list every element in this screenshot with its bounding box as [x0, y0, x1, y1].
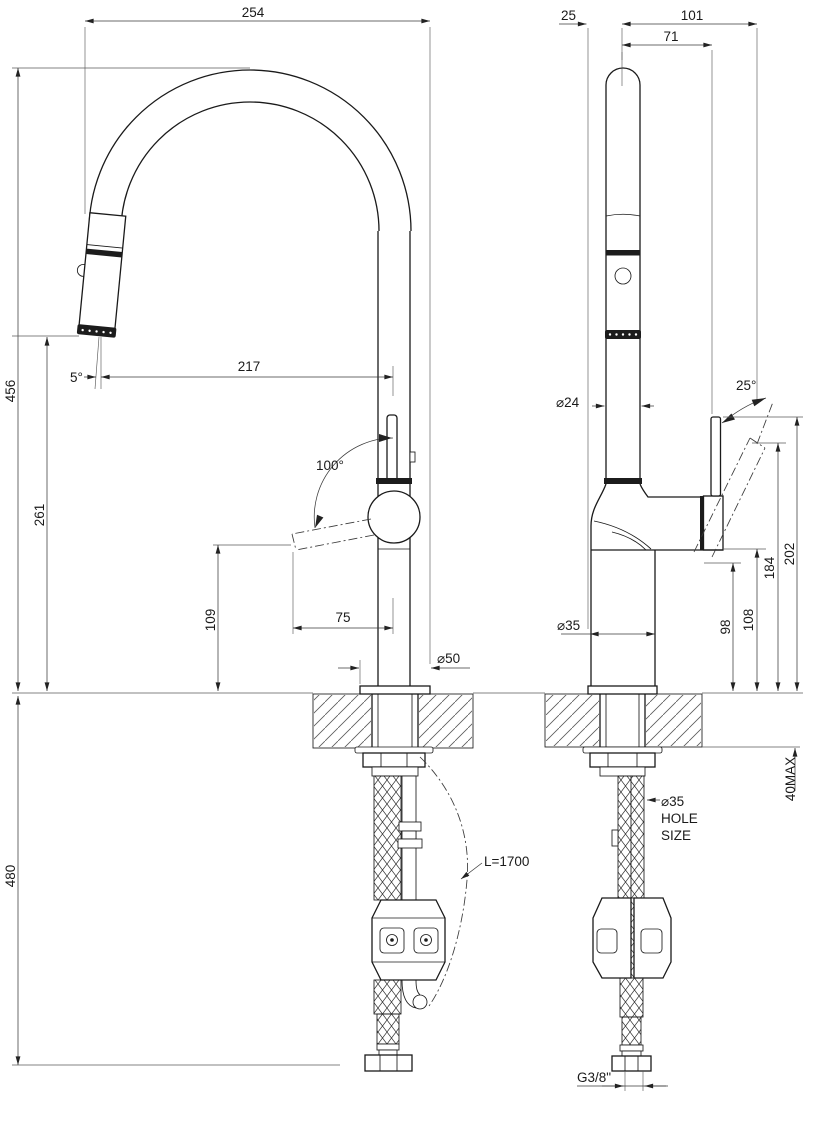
dim-25-front-offset: 25 [559, 8, 587, 24]
dim-98-handle-low-height: 98 [704, 563, 741, 691]
gooseneck-spout-outer [89, 70, 411, 231]
handle-lever-front [387, 415, 397, 481]
dim-261-outlet-height: 261 [12, 336, 79, 691]
counter-hatch-left [314, 695, 371, 747]
hole-note-d35: ⌀35 [661, 794, 684, 809]
braided-supply-hose-front [374, 776, 401, 900]
angle-25-label: 25° [736, 378, 756, 393]
dim-184-label: 184 [762, 556, 777, 579]
base-flange-front [360, 686, 430, 694]
dim-217-label: 217 [238, 359, 261, 374]
side-view [545, 68, 773, 1071]
mixing-ball-joint [368, 491, 420, 543]
dim-109-label: 109 [203, 609, 218, 632]
collar-band-front [376, 478, 412, 484]
dim-d24-spout-diameter: ⌀24 [556, 395, 654, 410]
dim-217-outlet-to-axis: 5° 217 [70, 337, 393, 396]
dim-456-overall-height: 456 [3, 68, 250, 691]
washer-front [355, 747, 433, 753]
dim-d35-label: ⌀35 [557, 618, 580, 633]
dim-101-label: 101 [681, 8, 704, 23]
dim-g38-thread: G3/8" [577, 1070, 668, 1091]
dim-d35-riser-diameter: ⌀35 [557, 618, 655, 634]
collar-band-side [604, 478, 642, 484]
faucet-technical-drawing-page: 254 456 261 480 5° [0, 0, 835, 1144]
angle-100-label: 100° [316, 458, 344, 473]
dim-109-handle-tip-height: 109 [203, 545, 291, 691]
mounting-nut-front [363, 753, 425, 767]
gooseneck-spout-inner [121, 102, 379, 231]
dim-25deg-handle-tilt: 25° [722, 378, 766, 423]
hole-note-size: SIZE [661, 828, 691, 843]
front-view [71, 70, 473, 1071]
dim-202-handle-top-height: 202 [723, 417, 803, 691]
handle-lever-side [711, 417, 721, 496]
note-hose-length: L=1700 [461, 854, 529, 879]
dim-25-label: 25 [561, 8, 576, 23]
side-tab [410, 452, 415, 462]
faucet-body-side [591, 484, 723, 550]
dim-40max-label: 40MAX [783, 757, 798, 801]
supply-hose-end-nut-side [612, 1056, 651, 1071]
spray-button-side [615, 268, 631, 284]
dim-40max-counter-thickness: 40MAX [783, 748, 798, 801]
dim-108-label: 108 [741, 609, 756, 632]
dim-d24-label: ⌀24 [556, 395, 580, 410]
dim-d50-base-diameter: ⌀50 [338, 651, 470, 684]
dim-480-label: 480 [3, 865, 18, 888]
dim-71-handle-reach: 71 [622, 29, 712, 45]
mounting-nut-side [590, 753, 655, 767]
pull-out-hose-end [413, 995, 427, 1009]
counterweight-side [593, 898, 671, 978]
dim-261-label: 261 [32, 504, 47, 527]
faucet-technical-drawing: 254 456 261 480 5° [0, 0, 835, 1144]
dim-456-label: 456 [3, 380, 18, 403]
dim-d50-label: ⌀50 [437, 651, 460, 666]
dim-98-label: 98 [718, 619, 733, 634]
thread-label: G3/8" [577, 1070, 611, 1085]
hole-note-hole: HOLE [661, 811, 698, 826]
dim-480-below-counter: 480 [3, 696, 340, 1065]
counterweight-front [372, 900, 445, 980]
base-flange-side [588, 686, 657, 694]
front-view-dimensions: 254 456 261 480 5° [3, 5, 545, 1065]
braided-hose-lower-front [374, 980, 401, 1014]
supply-hose-end-nut-front [365, 1055, 412, 1071]
dim-202-label: 202 [782, 543, 797, 566]
dim-75-label: 75 [335, 610, 350, 625]
pull-out-spray-head [71, 212, 127, 338]
angle-5-label: 5° [70, 370, 83, 385]
dim-254-label: 254 [242, 5, 265, 20]
dim-101-rear-reach: 101 [622, 8, 757, 24]
hose-length-label: L=1700 [484, 854, 529, 869]
counter-hatch-right [419, 695, 472, 747]
cartridge-cap [704, 496, 724, 550]
note-hole-size: ⌀35 HOLE SIZE [647, 794, 698, 843]
dim-71-label: 71 [663, 29, 678, 44]
handle-rotated-front [292, 519, 374, 550]
